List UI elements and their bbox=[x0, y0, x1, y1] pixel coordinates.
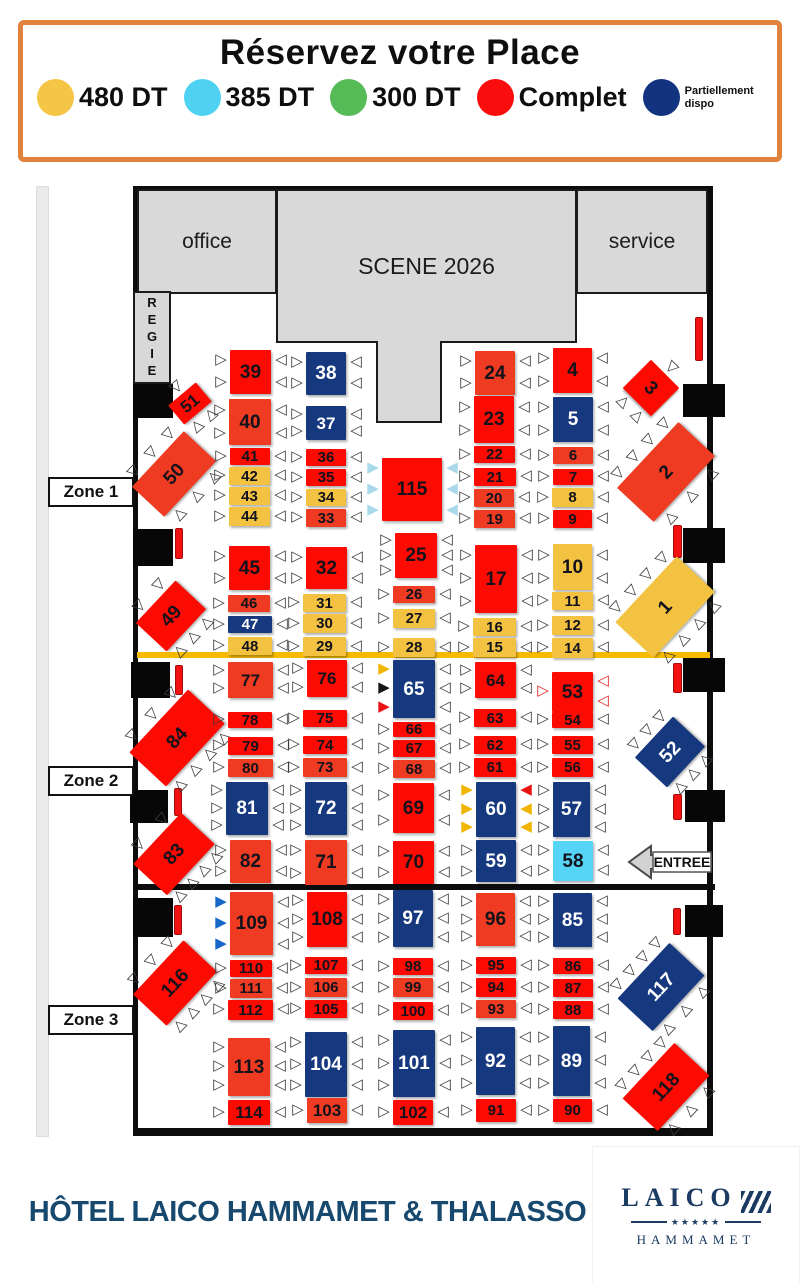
table-114[interactable]: 114▷◁ bbox=[228, 1100, 270, 1125]
office-label: office bbox=[182, 230, 232, 254]
table-47[interactable]: 47▷◁ bbox=[228, 616, 272, 633]
wall-block bbox=[131, 662, 170, 698]
laico-logo: LAICO ★★★★★ HAMMAMET bbox=[592, 1146, 800, 1282]
wall-block bbox=[133, 384, 173, 418]
logo-stars: ★★★★★ bbox=[631, 1217, 761, 1228]
table-89[interactable]: 89▷▷▷◁◁◁ bbox=[553, 1026, 590, 1096]
table-85[interactable]: 85▷▷▷◁◁◁ bbox=[553, 893, 592, 947]
table-105[interactable]: 105▷◁ bbox=[305, 1000, 347, 1018]
table-59[interactable]: 59▷▷◁◁ bbox=[476, 840, 516, 882]
table-98[interactable]: 98▷◁ bbox=[393, 958, 433, 975]
table-24[interactable]: 24▷▷◁◁ bbox=[475, 351, 515, 395]
table-33[interactable]: 33▷◁ bbox=[306, 509, 346, 527]
table-74[interactable]: 74▷◁ bbox=[303, 736, 347, 754]
table-94[interactable]: 94▷◁ bbox=[476, 978, 516, 997]
wall-block bbox=[685, 790, 725, 822]
table-40[interactable]: 40▷▷◁◁ bbox=[229, 399, 271, 445]
table-82[interactable]: 82▷▷◁◁ bbox=[230, 840, 271, 883]
table-15[interactable]: 15▷◁ bbox=[473, 638, 516, 657]
table-11[interactable]: 11▷◁ bbox=[552, 592, 593, 610]
zone-label: Zone 3 bbox=[48, 1005, 134, 1035]
table-80[interactable]: 80▷◁ bbox=[228, 759, 273, 777]
logo-rule-right bbox=[725, 1221, 761, 1223]
table-63[interactable]: 63▷◁ bbox=[474, 709, 516, 727]
table-19[interactable]: 19▷◁ bbox=[474, 510, 515, 528]
table-88[interactable]: 88▷◁ bbox=[553, 1001, 593, 1019]
stage-thrust bbox=[376, 341, 442, 423]
table-107[interactable]: 107▷◁ bbox=[305, 957, 347, 974]
regie-label: R E G I E bbox=[147, 295, 157, 379]
red-fixture bbox=[673, 663, 682, 693]
table-102[interactable]: 102▷◁ bbox=[393, 1100, 433, 1125]
table-71[interactable]: 71▷▷◁◁ bbox=[305, 840, 347, 885]
table-104[interactable]: 104▷▷▷◁◁◁ bbox=[305, 1032, 347, 1097]
wall-block bbox=[685, 905, 723, 937]
table-29[interactable]: 29▷◁ bbox=[303, 637, 346, 656]
table-96[interactable]: 96▷▷▷◁◁◁ bbox=[476, 893, 515, 946]
table-112[interactable]: 112▷◁ bbox=[228, 1000, 273, 1020]
table-103[interactable]: 103▷◁ bbox=[307, 1098, 347, 1123]
zone-label: Zone 2 bbox=[48, 766, 134, 796]
left-edge-strip bbox=[36, 186, 49, 1137]
table-31[interactable]: 31▷◁ bbox=[303, 594, 346, 612]
table-45[interactable]: 45▷▷◁◁ bbox=[229, 546, 270, 590]
red-fixture bbox=[175, 665, 183, 695]
table-106[interactable]: 106▷◁ bbox=[305, 978, 347, 997]
table-12[interactable]: 12▷◁ bbox=[552, 616, 593, 635]
table-97[interactable]: 97▷▷▷◁◁◁ bbox=[393, 890, 433, 947]
table-48[interactable]: 48▷◁ bbox=[228, 637, 272, 655]
table-26[interactable]: 26▷◁ bbox=[393, 586, 435, 603]
table-4[interactable]: 4▷▷◁◁ bbox=[553, 348, 592, 393]
table-91[interactable]: 91▷◁ bbox=[476, 1099, 516, 1122]
table-113[interactable]: 113▷▷▷◁◁◁ bbox=[228, 1038, 270, 1096]
table-30[interactable]: 30▷◁ bbox=[303, 614, 346, 633]
table-23[interactable]: 23▷▷◁◁ bbox=[474, 396, 514, 443]
table-100[interactable]: 100▷◁ bbox=[393, 1002, 433, 1020]
table-46[interactable]: 46▷◁ bbox=[228, 595, 270, 612]
table-58[interactable]: 58▷▷◁◁ bbox=[553, 841, 593, 881]
zone-label: Zone 1 bbox=[48, 477, 134, 507]
red-fixture bbox=[673, 794, 682, 820]
wall-block bbox=[683, 528, 725, 563]
floor-plan: office SCENE 2026 service R E G I E ENTR… bbox=[0, 0, 800, 1282]
table-53[interactable]: 53▷◁◁ bbox=[552, 672, 593, 712]
table-109[interactable]: 109▶▶▶◁◁◁ bbox=[230, 892, 273, 955]
table-70[interactable]: 70▷▷◁◁ bbox=[393, 841, 434, 884]
service-label: service bbox=[609, 230, 676, 254]
table-39[interactable]: 39▷▷◁◁ bbox=[230, 350, 271, 394]
logo-stripes-icon bbox=[741, 1191, 771, 1213]
table-32[interactable]: 32▷▷◁◁ bbox=[306, 547, 347, 589]
table-61[interactable]: 61▷◁ bbox=[474, 758, 516, 777]
table-86[interactable]: 86▷◁ bbox=[553, 958, 593, 974]
table-108[interactable]: 108▷▷▷◁◁◁ bbox=[307, 892, 347, 947]
logo-name: LAICO bbox=[621, 1183, 736, 1213]
table-9[interactable]: 9▷◁ bbox=[553, 510, 592, 528]
table-5[interactable]: 5▷▷◁◁ bbox=[553, 397, 593, 442]
entree-label: ENTREE bbox=[654, 854, 711, 870]
table-101[interactable]: 101▷▷▷◁◁◁ bbox=[393, 1030, 435, 1097]
table-35[interactable]: 35▷◁ bbox=[306, 469, 346, 486]
table-54[interactable]: 54▷◁ bbox=[552, 712, 593, 728]
table-62[interactable]: 62▷◁ bbox=[474, 736, 516, 754]
table-42[interactable]: 42▷◁ bbox=[229, 467, 270, 485]
logo-city: HAMMAMET bbox=[637, 1232, 756, 1248]
stage: SCENE 2026 bbox=[276, 189, 577, 343]
table-67[interactable]: 67▷◁ bbox=[393, 740, 435, 757]
table-81[interactable]: 81▷▷▷◁◁◁ bbox=[226, 782, 268, 835]
table-72[interactable]: 72▷▷▷◁◁◁ bbox=[305, 782, 347, 835]
table-16[interactable]: 16▷◁ bbox=[473, 618, 516, 636]
table-6[interactable]: 6▷◁ bbox=[553, 447, 593, 464]
table-73[interactable]: 73▷◁ bbox=[303, 758, 347, 777]
table-21[interactable]: 21▷◁ bbox=[474, 468, 516, 486]
table-8[interactable]: 8▷◁ bbox=[552, 488, 593, 507]
table-95[interactable]: 95▷◁ bbox=[476, 957, 516, 974]
red-fixture bbox=[673, 908, 681, 935]
table-110[interactable]: 110▷◁ bbox=[230, 960, 272, 977]
table-57[interactable]: 57▷▷▷◁◁◁ bbox=[553, 782, 590, 837]
table-64[interactable]: 64▷▷◁◁ bbox=[475, 662, 516, 698]
table-14[interactable]: 14▷◁ bbox=[552, 638, 593, 658]
table-60[interactable]: 60▶▶▶◀◀◀ bbox=[476, 782, 516, 837]
wall-block bbox=[133, 529, 173, 566]
table-99[interactable]: 99▷◁ bbox=[393, 978, 433, 997]
wall-block bbox=[133, 898, 173, 937]
table-111[interactable]: 111▷◁ bbox=[230, 979, 272, 998]
table-77[interactable]: 77▷▷◁◁ bbox=[228, 662, 273, 698]
red-fixture bbox=[673, 525, 682, 558]
table-69[interactable]: 69▷▷◁◁ bbox=[393, 783, 434, 833]
table-79[interactable]: 79▷◁ bbox=[228, 737, 273, 755]
table-25[interactable]: 25▷▷▷◁◁◁ bbox=[395, 533, 437, 578]
red-fixture bbox=[174, 905, 182, 935]
wall-block bbox=[683, 384, 725, 417]
table-27[interactable]: 27▷◁ bbox=[393, 609, 435, 628]
table-36[interactable]: 36▷◁ bbox=[306, 449, 346, 466]
table-75[interactable]: 75▷◁ bbox=[303, 710, 347, 727]
page: Réservez votre Place 480 DT385 DT300 DTC… bbox=[0, 0, 800, 1282]
logo-row: LAICO bbox=[621, 1183, 770, 1213]
table-20[interactable]: 20▷◁ bbox=[474, 489, 514, 507]
table-87[interactable]: 87▷◁ bbox=[553, 979, 593, 997]
table-93[interactable]: 93▷◁ bbox=[476, 1000, 516, 1018]
logo-rule-left bbox=[631, 1221, 667, 1223]
table-65[interactable]: 65▶▶▶◁◁◁ bbox=[393, 660, 435, 718]
table-44[interactable]: 44▷◁ bbox=[229, 507, 270, 526]
table-41[interactable]: 41▷◁ bbox=[230, 448, 270, 465]
room-office: office bbox=[137, 189, 277, 294]
wall-block bbox=[130, 790, 168, 823]
regie-booth: R E G I E bbox=[133, 291, 171, 384]
table-90[interactable]: 90▷◁ bbox=[553, 1099, 592, 1122]
table-55[interactable]: 55▷◁ bbox=[552, 736, 593, 754]
hotel-name: HÔTEL LAICO HAMMAMET & THALASSO bbox=[25, 1196, 590, 1229]
table-17[interactable]: 17▷▷▷◁◁◁ bbox=[475, 545, 517, 613]
star-icons: ★★★★★ bbox=[671, 1217, 721, 1228]
table-38[interactable]: 38▷▷◁◁ bbox=[306, 352, 346, 395]
stage-label: SCENE 2026 bbox=[358, 253, 495, 280]
table-28[interactable]: 28▷◁ bbox=[393, 638, 435, 657]
table-56[interactable]: 56▷◁ bbox=[552, 758, 593, 777]
table-10[interactable]: 10▷▷◁◁ bbox=[553, 544, 592, 590]
table-37[interactable]: 37▷▷◁◁ bbox=[306, 406, 346, 440]
room-service: service bbox=[576, 189, 708, 294]
wall-block bbox=[683, 658, 725, 692]
table-76[interactable]: 76▷▷◁◁ bbox=[307, 660, 347, 697]
table-66[interactable]: 66▷◁ bbox=[393, 722, 435, 737]
entrance-arrow: ENTREE bbox=[627, 843, 713, 881]
table-22[interactable]: 22▷◁ bbox=[474, 446, 515, 463]
table-78[interactable]: 78▷◁ bbox=[228, 712, 272, 728]
table-34[interactable]: 34▷◁ bbox=[306, 489, 346, 506]
red-fixture bbox=[695, 317, 703, 361]
table-115[interactable]: 115▶▶▶◀◀◀ bbox=[382, 458, 442, 521]
table-43[interactable]: 43▷◁ bbox=[229, 487, 270, 505]
table-7[interactable]: 7▷◁ bbox=[553, 469, 593, 485]
table-92[interactable]: 92▷▷▷◁◁◁ bbox=[476, 1027, 515, 1095]
red-fixture bbox=[175, 528, 183, 559]
table-68[interactable]: 68▷◁ bbox=[393, 760, 435, 778]
